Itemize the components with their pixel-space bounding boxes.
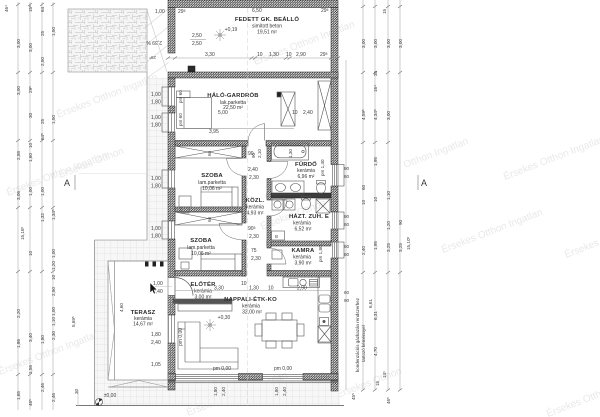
svg-text:2,58: 2,58 — [16, 151, 21, 160]
svg-text:25: 25 — [40, 118, 45, 124]
svg-text:3,00 m²: 3,00 m² — [195, 295, 212, 301]
svg-text:10: 10 — [268, 286, 274, 292]
svg-text:15,165: 15,165 — [20, 227, 25, 241]
svg-text:3,00: 3,00 — [386, 39, 391, 48]
svg-text:SZOBA: SZOBA — [190, 238, 212, 244]
svg-text:2,50: 2,50 — [40, 57, 45, 66]
svg-text:6,50: 6,50 — [252, 8, 262, 14]
svg-text:90: 90 — [398, 219, 403, 225]
svg-text:1,20: 1,20 — [386, 221, 391, 230]
svg-text:15: 15 — [382, 8, 387, 14]
svg-text:60: 60 — [344, 222, 350, 227]
svg-text:2,20: 2,20 — [16, 309, 21, 318]
svg-text:NAPPALI-ÉTK-KO: NAPPALI-ÉTK-KO — [224, 295, 277, 303]
svg-text:35: 35 — [373, 70, 378, 76]
svg-text:2,50: 2,50 — [51, 287, 56, 296]
svg-text:60: 60 — [344, 244, 350, 249]
svg-text:1,20: 1,20 — [51, 261, 56, 270]
svg-text:1,80: 1,80 — [274, 387, 279, 396]
svg-text:6,96 m²: 6,96 m² — [298, 174, 315, 180]
svg-text:3,06: 3,06 — [16, 191, 21, 200]
svg-text:3,00: 3,00 — [16, 39, 21, 48]
svg-text:60: 60 — [344, 252, 350, 257]
svg-text:30: 30 — [28, 112, 33, 118]
svg-text:1,00: 1,00 — [151, 92, 161, 98]
svg-text:pm 0,00: pm 0,00 — [213, 366, 231, 372]
svg-text:1,00: 1,00 — [40, 187, 45, 196]
svg-text:KAMRA: KAMRA — [292, 248, 315, 254]
svg-text:1,10: 1,10 — [386, 191, 391, 200]
svg-text:10: 10 — [28, 142, 33, 148]
svg-text:60: 60 — [344, 290, 350, 295]
svg-text:HÁLÓ-GARDRÓB: HÁLÓ-GARDRÓB — [207, 91, 258, 99]
svg-text:1,95: 1,95 — [373, 241, 378, 250]
svg-text:3,90 m²: 3,90 m² — [295, 261, 312, 267]
svg-text:10: 10 — [241, 281, 247, 287]
svg-text:1,00: 1,00 — [151, 176, 161, 182]
svg-text:1,56: 1,56 — [28, 365, 33, 374]
svg-text:90: 90 — [251, 152, 256, 158]
svg-text:1,00: 1,00 — [151, 115, 161, 121]
svg-text:15: 15 — [375, 380, 380, 386]
svg-text:tartozó kéménnyel: tartozó kéménnyel — [361, 325, 366, 362]
svg-text:1,05: 1,05 — [151, 362, 161, 368]
svg-text:pm 60: pm 60 — [178, 90, 183, 103]
svg-text:3,25: 3,25 — [386, 243, 391, 252]
svg-text:90: 90 — [344, 214, 350, 219]
svg-text:14,67 m²: 14,67 m² — [133, 322, 153, 328]
svg-text:pm 60: pm 60 — [178, 113, 183, 126]
svg-text:pm 1,80: pm 1,80 — [318, 245, 323, 262]
svg-text:5,00: 5,00 — [218, 110, 228, 116]
svg-text:1,95: 1,95 — [373, 157, 378, 166]
svg-text:64: 64 — [40, 6, 45, 12]
svg-text:2,30: 2,30 — [51, 331, 56, 340]
svg-text:1,50: 1,50 — [51, 115, 56, 124]
svg-text:1,00: 1,00 — [51, 249, 56, 258]
svg-text:1,80: 1,80 — [151, 100, 161, 106]
svg-text:3,00: 3,00 — [16, 86, 21, 95]
svg-text:1,00: 1,00 — [151, 226, 161, 232]
svg-text:2,90: 2,90 — [297, 286, 307, 292]
svg-text:1,30: 1,30 — [249, 286, 259, 292]
svg-text:10: 10 — [28, 250, 33, 256]
svg-text:6,52 m²: 6,52 m² — [295, 227, 312, 233]
svg-text:1,80: 1,80 — [151, 234, 161, 240]
svg-text:75: 75 — [251, 248, 257, 254]
svg-text:ELŐTÉR: ELŐTÉR — [190, 280, 216, 288]
svg-text:2,10: 2,10 — [257, 149, 262, 158]
svg-text:3,25: 3,25 — [398, 243, 403, 252]
svg-text:1,60: 1,60 — [28, 153, 33, 162]
svg-text:A: A — [421, 178, 427, 188]
svg-text:1,80: 1,80 — [151, 332, 161, 338]
svg-text:2,39 %: 2,39 % — [146, 39, 162, 45]
svg-text:60: 60 — [207, 150, 212, 156]
svg-text:+0,19: +0,19 — [225, 27, 238, 33]
svg-text:10: 10 — [361, 199, 366, 205]
svg-text:SZOBA: SZOBA — [201, 173, 223, 179]
svg-text:1,65: 1,65 — [16, 391, 21, 400]
svg-text:19,51 m²: 19,51 m² — [257, 30, 277, 36]
svg-text:+0,30: +0,30 — [218, 315, 231, 321]
svg-text:2,40: 2,40 — [248, 167, 258, 173]
svg-text:60: 60 — [344, 174, 350, 179]
svg-text:2,30: 2,30 — [251, 256, 261, 262]
svg-text:±0,00: ±0,00 — [104, 393, 117, 399]
svg-text:1,80: 1,80 — [151, 123, 161, 129]
svg-text:10: 10 — [373, 196, 378, 202]
svg-text:2,50: 2,50 — [192, 33, 202, 39]
svg-text:A: A — [64, 178, 70, 188]
svg-text:2,40: 2,40 — [361, 246, 366, 255]
svg-text:kondenzációs gázkazán rendszer: kondenzációs gázkazán rendszerhez — [355, 297, 360, 372]
svg-text:3,00: 3,00 — [28, 43, 33, 52]
svg-text:6,31: 6,31 — [373, 311, 378, 320]
svg-text:2,40: 2,40 — [303, 110, 313, 116]
svg-text:4,60: 4,60 — [119, 303, 124, 312]
svg-text:3,00: 3,00 — [386, 111, 391, 120]
svg-text:10,06 m²: 10,06 m² — [202, 186, 222, 192]
svg-text:pm 1,40: pm 1,40 — [320, 159, 325, 176]
svg-text:6,61: 6,61 — [368, 299, 373, 308]
svg-text:KÖZL.: KÖZL. — [246, 197, 265, 204]
svg-text:3,95: 3,95 — [209, 129, 219, 135]
svg-text:10: 10 — [257, 52, 263, 58]
svg-text:2,46: 2,46 — [51, 393, 56, 402]
svg-text:1,00: 1,00 — [155, 9, 165, 15]
svg-text:1,80: 1,80 — [151, 184, 161, 190]
svg-text:25: 25 — [40, 30, 45, 36]
svg-text:pm 0,00: pm 0,00 — [274, 366, 292, 372]
svg-text:30: 30 — [74, 388, 79, 394]
svg-text:2,40: 2,40 — [221, 387, 226, 396]
svg-text:32,00 m²: 32,00 m² — [242, 310, 262, 316]
svg-text:90: 90 — [344, 166, 350, 171]
svg-text:15,105: 15,105 — [406, 237, 411, 251]
svg-text:B: B — [275, 234, 278, 239]
svg-text:1,80: 1,80 — [40, 335, 45, 344]
svg-text:2,90: 2,90 — [296, 52, 306, 58]
svg-text:HÁZT. ZUH. E: HÁZT. ZUH. E — [289, 213, 329, 220]
svg-text:FÜRDŐ: FÜRDŐ — [295, 161, 317, 168]
svg-text:1,00: 1,00 — [51, 307, 56, 316]
svg-text:10: 10 — [286, 52, 292, 58]
svg-text:1,30: 1,30 — [269, 52, 279, 58]
svg-text:1,00: 1,00 — [153, 281, 163, 287]
svg-text:2,30: 2,30 — [249, 175, 259, 181]
svg-text:3,00: 3,00 — [361, 39, 366, 48]
svg-text:pm 0,00: pm 0,00 — [178, 328, 184, 346]
svg-text:2,30: 2,30 — [249, 234, 259, 240]
svg-text:90: 90 — [344, 298, 350, 303]
svg-text:10: 10 — [51, 274, 56, 280]
svg-text:1,86: 1,86 — [16, 339, 21, 348]
svg-text:4,93 m²: 4,93 m² — [247, 211, 264, 217]
svg-text:3,00: 3,00 — [398, 39, 403, 48]
svg-text:1,00: 1,00 — [28, 187, 33, 196]
svg-text:FEDETT GK. BEÁLLÓ: FEDETT GK. BEÁLLÓ — [235, 15, 299, 23]
svg-text:4,70: 4,70 — [373, 347, 378, 356]
svg-text:2,40: 2,40 — [282, 387, 287, 396]
svg-text:1,50: 1,50 — [51, 27, 56, 36]
svg-text:3,40: 3,40 — [28, 333, 33, 342]
svg-text:2,46: 2,46 — [40, 383, 45, 392]
svg-text:2,40: 2,40 — [151, 340, 161, 346]
svg-text:60: 60 — [207, 216, 212, 222]
svg-text:1,80: 1,80 — [213, 387, 218, 396]
svg-text:1,30: 1,30 — [288, 149, 293, 158]
svg-text:10: 10 — [292, 110, 298, 116]
svg-text:2,50: 2,50 — [192, 41, 202, 47]
svg-text:1,32: 1,32 — [40, 213, 45, 222]
svg-text:60: 60 — [361, 184, 366, 190]
svg-text:3,30: 3,30 — [205, 52, 215, 58]
svg-text:10,06 m²: 10,06 m² — [191, 251, 211, 257]
svg-text:1,10: 1,10 — [51, 317, 56, 326]
svg-text:3,30: 3,30 — [214, 286, 224, 292]
svg-text:3,00: 3,00 — [373, 39, 378, 48]
